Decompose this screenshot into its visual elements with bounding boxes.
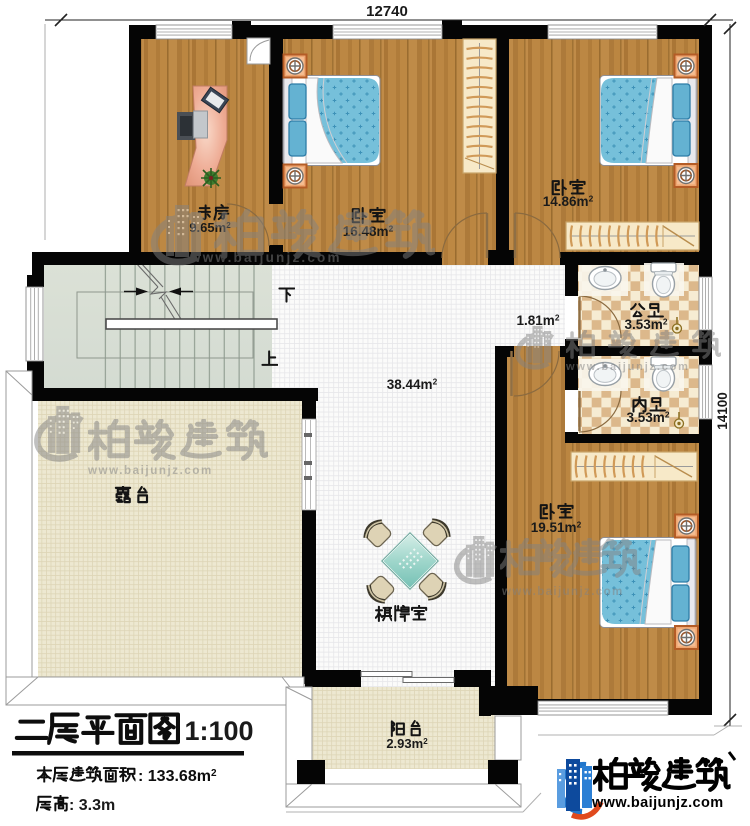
svg-text:1.81m2: 1.81m2	[517, 313, 560, 328]
svg-text:38.44m2: 38.44m2	[387, 377, 438, 392]
svg-text:19.51m2: 19.51m2	[531, 520, 582, 535]
svg-text:1:100: 1:100	[184, 716, 253, 746]
svg-text:3.53m2: 3.53m2	[625, 317, 668, 332]
svg-text:14.86m2: 14.86m2	[543, 194, 594, 209]
svg-text:www.baijunjz.com: www.baijunjz.com	[87, 465, 213, 477]
svg-text:www.baijunjz.com: www.baijunjz.com	[565, 361, 690, 373]
svg-text:www.baijunjz.com: www.baijunjz.com	[501, 586, 624, 598]
svg-text:12740: 12740	[366, 3, 408, 20]
svg-text:2.93m2: 2.93m2	[386, 736, 428, 751]
svg-text:14100: 14100	[715, 392, 730, 430]
svg-text:www.baijunjz.com: www.baijunjz.com	[591, 795, 724, 811]
svg-text:3.53m2: 3.53m2	[627, 410, 670, 425]
svg-text:: 3.3m: : 3.3m	[69, 797, 115, 814]
svg-text:: 133.68m2: : 133.68m2	[138, 768, 217, 785]
svg-text:www.baijunjz.com: www.baijunjz.com	[189, 250, 342, 265]
